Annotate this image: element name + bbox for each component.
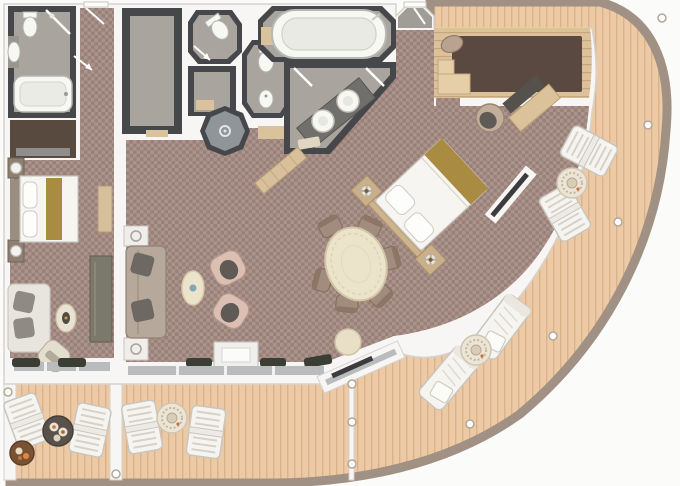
shower-bench xyxy=(196,100,214,110)
rail-post xyxy=(549,332,557,340)
lamp xyxy=(11,246,22,257)
washbasin xyxy=(8,42,20,62)
rail-post xyxy=(348,460,356,468)
rail-post xyxy=(348,380,356,388)
lamp xyxy=(11,163,22,174)
closet-dresser xyxy=(438,74,470,94)
pouf xyxy=(335,329,361,355)
rail-post xyxy=(644,121,652,129)
pillow xyxy=(23,182,37,208)
guest-headboard xyxy=(10,180,20,240)
guest-dresser xyxy=(98,186,112,232)
closet-opening xyxy=(436,98,460,108)
guest-side-table xyxy=(56,304,76,332)
whirlpool-tub-room xyxy=(258,6,396,62)
rail-post xyxy=(614,218,622,226)
tub-faucet xyxy=(64,92,68,96)
planter xyxy=(12,358,40,367)
guest-sofa xyxy=(8,284,50,352)
deck-chair xyxy=(186,405,227,459)
table-dark xyxy=(43,416,73,446)
end-table xyxy=(124,226,148,246)
table-mandala xyxy=(461,335,491,365)
rail-post xyxy=(4,388,12,396)
cushion xyxy=(130,298,155,323)
guest-entry-door xyxy=(84,2,108,7)
closet-dresser xyxy=(438,60,454,74)
coffee-table xyxy=(182,271,204,305)
bath-mat xyxy=(258,126,284,139)
guest-entry-corridor xyxy=(80,8,114,160)
wc-room xyxy=(188,10,242,64)
end-table xyxy=(124,338,148,360)
rail-post xyxy=(466,420,474,428)
planter xyxy=(186,358,212,367)
rail-post xyxy=(658,14,666,22)
guest-sideboard xyxy=(90,256,112,342)
floor-plan-canvas: luxury cruise suite with wrap-around bal… xyxy=(0,0,680,486)
planter xyxy=(260,358,286,367)
table-orange xyxy=(10,441,34,465)
guest-wardrobe xyxy=(10,120,76,158)
toilet xyxy=(23,17,37,37)
walk-in-wardrobe xyxy=(122,8,182,137)
shower-head xyxy=(50,14,55,19)
bed-runner xyxy=(46,178,62,240)
planter xyxy=(58,358,86,367)
rail-post xyxy=(348,418,356,426)
pillow xyxy=(23,211,37,237)
bidet xyxy=(259,90,273,108)
rail-post xyxy=(112,470,120,478)
entrance-door xyxy=(404,2,426,7)
table-mandala xyxy=(157,403,187,433)
table-mandala xyxy=(557,168,587,198)
living-window-band xyxy=(128,366,324,375)
floor-plan-svg xyxy=(0,0,680,486)
